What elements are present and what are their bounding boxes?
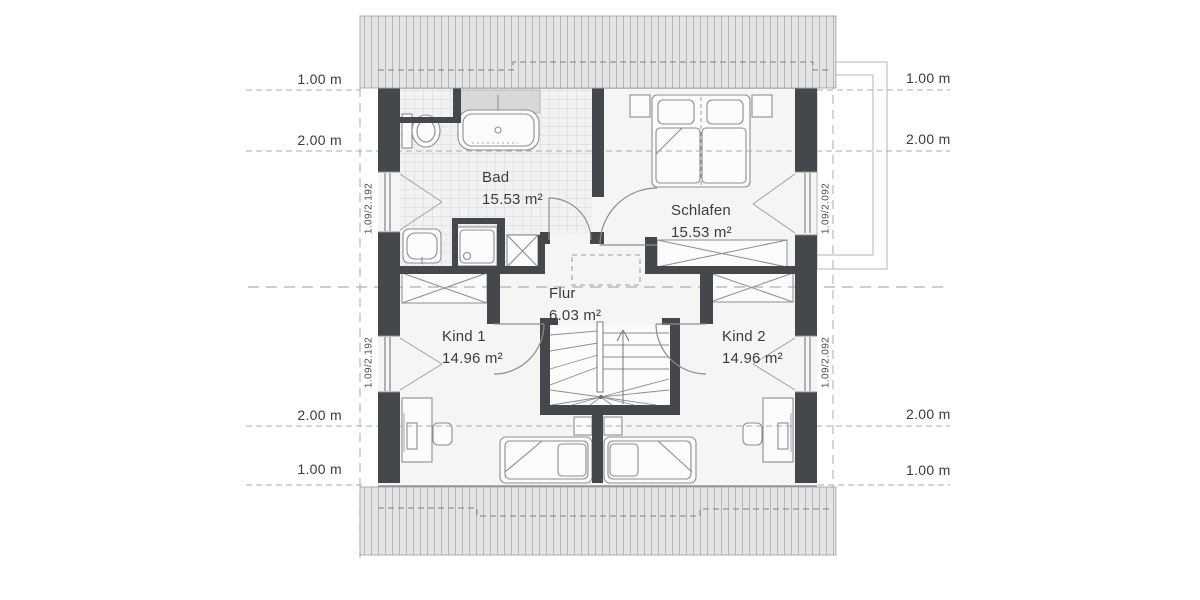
dim-label-2m-top-right: 2.00 m bbox=[906, 131, 962, 147]
roof-hatch-top bbox=[360, 16, 836, 88]
dim-label-2m-bottom-right: 2.00 m bbox=[906, 406, 962, 422]
room-area: 14.96 m² bbox=[442, 348, 503, 370]
dim-label-1m-bottom-right: 1.00 m bbox=[906, 462, 962, 478]
dim-label-1m-top-left: 1.00 m bbox=[286, 71, 342, 87]
room-label-bad: Bad 15.53 m² bbox=[482, 167, 543, 211]
sink-icon bbox=[403, 229, 441, 264]
dim-label-2m-bottom-left: 2.00 m bbox=[286, 407, 342, 423]
staircase bbox=[550, 322, 670, 405]
window-size-label-kind2: 1.09/2.092 bbox=[821, 321, 834, 405]
partition-kind1-kind2 bbox=[592, 412, 603, 483]
room-name: Flur bbox=[549, 283, 601, 305]
washer-box-icon bbox=[507, 235, 538, 267]
dim-label-2m-top-left: 2.00 m bbox=[286, 132, 342, 148]
dim-label-1m-bottom-left: 1.00 m bbox=[286, 461, 342, 477]
room-label-schlafen: Schlafen 15.53 m² bbox=[671, 200, 732, 244]
dim-label-1m-top-right: 1.00 m bbox=[906, 70, 962, 86]
window-size-label-bad: 1.09/2.192 bbox=[364, 167, 377, 251]
window-size-label-kind1: 1.09/2.192 bbox=[364, 321, 377, 405]
room-name: Kind 2 bbox=[722, 326, 783, 348]
room-area: 6.03 m² bbox=[549, 305, 601, 327]
roof-hatch-bottom bbox=[360, 487, 836, 555]
floor-plan: Bad 15.53 m² Schlafen 15.53 m² Flur 6.03… bbox=[0, 0, 1200, 600]
room-label-flur: Flur 6.03 m² bbox=[549, 283, 601, 327]
room-label-kind1: Kind 1 14.96 m² bbox=[442, 326, 503, 370]
room-area: 15.53 m² bbox=[671, 222, 732, 244]
room-name: Bad bbox=[482, 167, 543, 189]
room-name: Schlafen bbox=[671, 200, 732, 222]
room-label-kind2: Kind 2 14.96 m² bbox=[722, 326, 783, 370]
wardrobe-kind1 bbox=[402, 273, 487, 303]
room-area: 14.96 m² bbox=[722, 348, 783, 370]
room-name: Kind 1 bbox=[442, 326, 503, 348]
exterior-wall-right bbox=[795, 88, 817, 483]
shower-icon bbox=[457, 227, 497, 266]
nightstand-icon bbox=[630, 95, 650, 117]
window-size-label-schlafen: 1.09/2.092 bbox=[821, 167, 834, 251]
room-area: 15.53 m² bbox=[482, 189, 543, 211]
exterior-wall-left bbox=[378, 88, 400, 483]
nightstand-icon bbox=[752, 95, 772, 117]
wardrobe-schlafen bbox=[657, 240, 787, 267]
